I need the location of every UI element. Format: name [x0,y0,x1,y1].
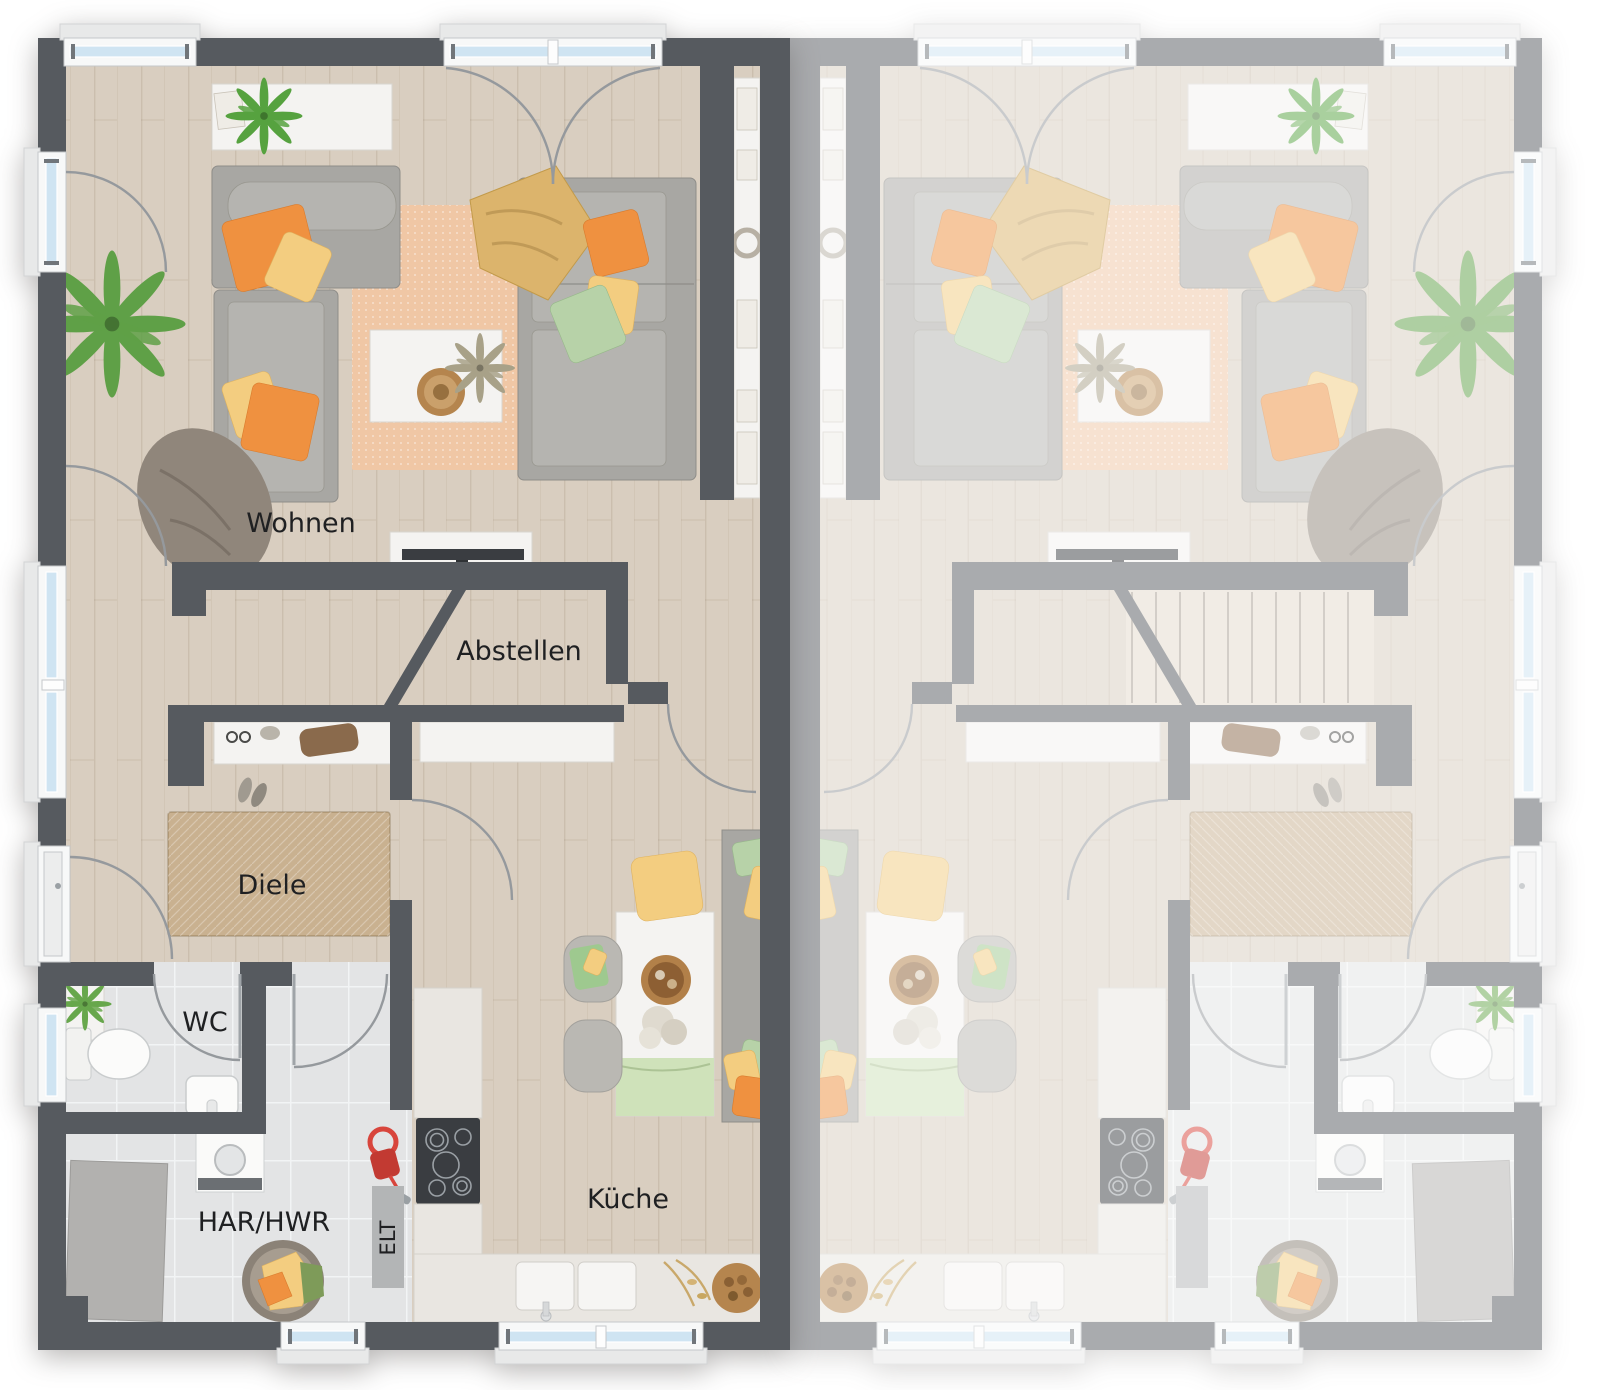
decor-sprig [260,726,280,740]
decor-sprig-mirrored [1300,726,1320,740]
hall-console-left [214,722,398,764]
wall-living-divider [172,562,628,590]
bookshelf-right-wall-mirrored [820,78,846,498]
plant-sideboard [226,78,303,155]
wall-wc-right-mirrored [1314,986,1338,1112]
wall-storage-bottom [168,705,624,722]
unit-left [790,24,1556,1364]
room-label-kueche: Küche [587,1184,669,1215]
room-label-wc: WC [182,1007,228,1038]
wall-wc-top-left-mirrored [1426,962,1514,986]
wall-hall-kitchen-lower [390,900,412,1110]
washing-machine [196,1130,264,1192]
wall-party [760,38,790,1350]
pillow-orange-2-mirrored [1260,382,1341,463]
window-top-left [60,24,200,66]
hall-console-right-mirrored [966,722,1160,762]
washing-machine-mirrored [1316,1130,1384,1192]
tall-cabinet-mirrored [1098,988,1166,1118]
laundry-basket-mirrored [1256,1240,1338,1322]
floorplan-canvas: Wohnen Abstellen Diele WC HAR/HWR ELT Kü… [0,0,1600,1390]
wall-hall-kitchen-lower-mirrored [1168,900,1190,1110]
plant-coffee-table-mirrored [1065,333,1135,403]
front-door-leaf [44,852,62,956]
wall-storage-right-mirrored [952,590,974,684]
wall-wc-bottom-mirrored [1314,1112,1514,1134]
sink-basin-2-mirrored [944,1262,1002,1310]
wall-hall-kitchen-upper-mirrored [1168,722,1190,800]
room-label-har-hwr: HAR/HWR [198,1207,330,1238]
dining-table-mirrored [866,912,964,1116]
room-label-abstellen: Abstellen [456,636,582,667]
cooktop-mirrored [1100,1118,1164,1204]
dining-chair-gray-2 [564,1020,622,1092]
dining-chair-yellow-mirrored [876,850,950,923]
dining-table [616,912,714,1116]
wall-storage-right [606,590,628,684]
unit-left: Wohnen Abstellen Diele WC HAR/HWR ELT Kü… [24,24,790,1364]
dining-chair-gray-2-mirrored [958,1020,1016,1092]
wall-wc-top-right [240,962,292,986]
laundry-basket [242,1240,324,1322]
front-door-leaf-mirrored [1518,852,1536,956]
wall-pillar [66,1296,88,1322]
bookshelf-right-wall [734,78,760,498]
window-wc [24,1004,66,1106]
wall-wc-right [242,986,266,1112]
wall-living-divider-mirrored [952,562,1408,590]
dining-chair-gray-1-mirrored [958,936,1016,1002]
pillow-orange-2 [240,382,321,463]
plant-coffee-table [445,333,515,403]
wall-corridor-mirrored [912,682,952,704]
dining-chair-gray-1 [564,936,622,1002]
window-hwr-mirrored [1211,1322,1303,1364]
wall-storage-bottom-mirrored [956,705,1412,722]
tv-flatscreen-mirrored [1056,549,1178,560]
window-kitchen [495,1322,707,1364]
floorplan-svg: Wohnen Abstellen Diele WC HAR/HWR ELT Kü… [0,0,1600,1390]
tv-flatscreen [402,549,524,560]
wall-corridor [628,682,668,704]
snack-bowl [712,1263,762,1313]
window-wc-mirrored [1514,1004,1556,1106]
wall-shelf-niche-mirrored [846,66,880,500]
room-label-diele: Diele [237,870,306,901]
plant-sideboard-mirrored [1278,78,1355,155]
window-top-left-mirrored [1380,24,1520,66]
hallway-jute-rug-mirrored [1190,812,1412,936]
snack-bowl-mirrored [818,1263,868,1313]
room-label-wohnen: Wohnen [246,508,356,539]
dining-chair-yellow [630,850,704,923]
hall-console-right [420,722,614,762]
toilet-bowl [88,1029,150,1079]
elt-electrical-panel-mirrored [1176,1186,1208,1288]
room-label-elt: ELT [376,1220,400,1255]
window-hwr [277,1322,369,1364]
wall-hall-kitchen-upper [390,722,412,800]
wall-wc-top-left [66,962,154,986]
tall-cabinet [414,988,482,1118]
hall-console-left-mirrored [1182,722,1366,764]
wall-wc-bottom [66,1112,266,1134]
wall-wc-top-right-mirrored [1288,962,1340,986]
toilet-bowl-mirrored [1430,1029,1492,1079]
staircase-mirrored [1126,590,1374,705]
wall-pillar-mirrored [1492,1296,1514,1322]
door-handle-mirrored [1519,883,1525,889]
door-handle [55,883,61,889]
sink-basin-2 [578,1262,636,1310]
cooktop [416,1118,480,1204]
wall-shelf-niche [700,66,734,500]
wall-party-mirrored [790,38,820,1350]
window-kitchen-mirrored [873,1322,1085,1364]
